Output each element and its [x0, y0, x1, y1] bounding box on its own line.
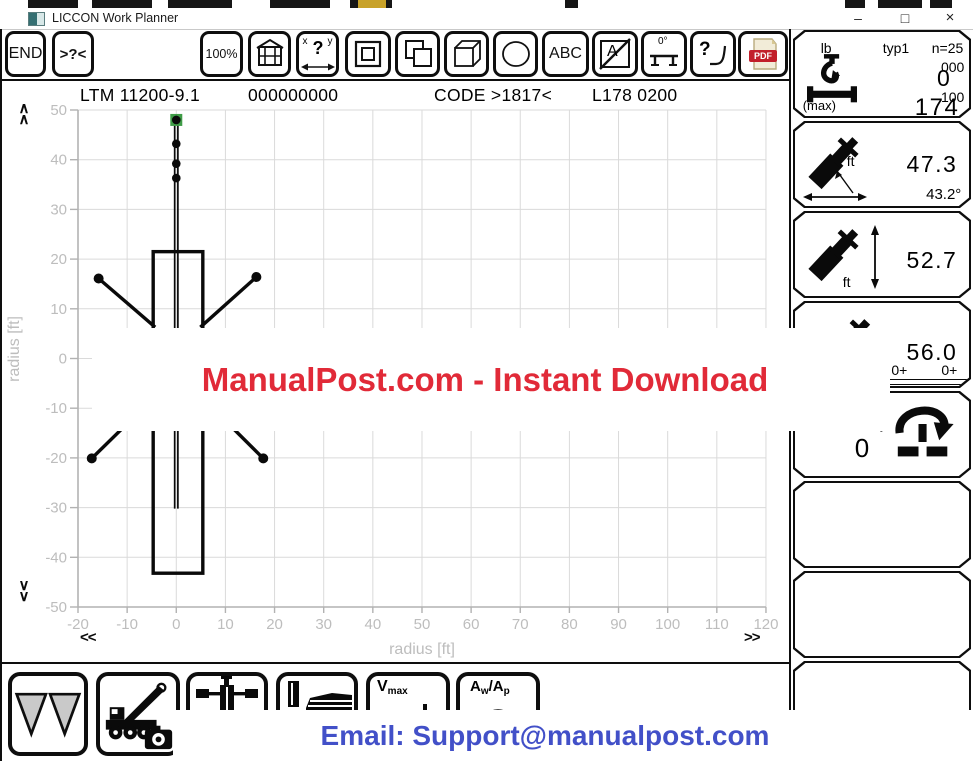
load-value-top: 0 — [937, 65, 951, 92]
outrigger-pad — [251, 272, 261, 282]
xy-question-icon: x y ? — [301, 36, 335, 72]
y-tick-label: -20 — [45, 450, 67, 467]
slope-query-button[interactable]: ? — [690, 31, 736, 77]
3d-view-button[interactable] — [444, 31, 489, 77]
x-tick-label: 10 — [217, 616, 234, 633]
slew-value: 0 — [855, 433, 871, 464]
y-tick-label: 50 — [50, 102, 67, 119]
zoom-100-button[interactable]: 100% — [200, 31, 243, 77]
x-tick-label: 80 — [561, 616, 578, 633]
height-unit: ft — [843, 274, 851, 290]
ground-angle-button[interactable]: 0° — [641, 31, 687, 77]
hook-position-dot — [172, 139, 181, 148]
x-axis-label: radius [ft] — [78, 641, 766, 659]
building-view-button[interactable] — [248, 31, 291, 77]
radius-value: 47.3 — [907, 151, 958, 178]
telescope-counter-2: 0+ — [891, 362, 907, 378]
titlebar: LICCON Work Planner – □ × — [0, 8, 973, 30]
scroll-page-down-button[interactable] — [8, 672, 88, 756]
end-label: END — [9, 45, 43, 63]
watermark-banner-text: ManualPost.com - Instant Download — [202, 361, 781, 399]
text-labels-button[interactable]: ABC — [542, 31, 589, 77]
a-crossed-icon: A — [598, 37, 632, 71]
x-tick-label: 60 — [463, 616, 480, 633]
boom-angle-icon — [801, 127, 871, 203]
inner-view-button[interactable] — [345, 31, 391, 77]
hook-height-panel[interactable]: ft 52.7 — [793, 211, 971, 298]
y-tick-label: 40 — [50, 152, 67, 169]
hook-position-dot — [172, 116, 181, 125]
load-type: typ1 — [883, 40, 909, 56]
vmax-label: Vmax — [377, 678, 408, 696]
close-button[interactable]: × — [935, 8, 965, 29]
watermark-banner: ManualPost.com - Instant Download — [92, 328, 890, 431]
outrigger-pad — [87, 453, 97, 463]
y-tick-label: 30 — [50, 201, 67, 218]
outrigger-pad — [94, 273, 104, 283]
x-tick-label: 110 — [705, 616, 729, 633]
x-tick-label: -10 — [116, 616, 138, 633]
x-tick-label: 120 — [753, 616, 778, 633]
zoom-label: 100% — [206, 47, 238, 61]
awap-label: Aw/Ap — [470, 678, 510, 696]
x-tick-label: 90 — [610, 616, 627, 633]
cube-icon — [450, 37, 484, 71]
window-title: LICCON Work Planner — [52, 11, 178, 25]
telescope-counter-3: 0+ — [941, 362, 957, 378]
empty-panel-2[interactable] — [793, 571, 971, 658]
crane-view-button[interactable] — [96, 672, 180, 756]
search-label: >?< — [60, 46, 87, 63]
empty-panel-1[interactable] — [793, 481, 971, 568]
radius-unit: ft — [847, 153, 855, 169]
level-surface-icon: 0° — [647, 36, 681, 72]
pdf-icon: PDF — [745, 37, 781, 71]
abc-label: ABC — [549, 45, 582, 63]
load-caption: (max) — [803, 98, 836, 113]
search-button[interactable]: >?< — [52, 31, 94, 77]
building-icon — [253, 37, 287, 71]
load-count: n=25 — [932, 40, 964, 56]
x-tick-label: 70 — [512, 616, 529, 633]
y-tick-label: 0 — [59, 351, 67, 368]
x-tick-label: 0 — [172, 616, 180, 633]
y-tick-label: 10 — [50, 301, 67, 318]
height-value: 52.7 — [907, 247, 958, 274]
x-tick-label: -20 — [67, 616, 89, 633]
y-tick-label: -40 — [45, 549, 67, 566]
app-icon — [28, 12, 45, 26]
x-tick-label: 30 — [315, 616, 332, 633]
y-tick-label: -10 — [45, 400, 67, 417]
minimize-button[interactable]: – — [843, 8, 873, 29]
overlapping-squares-icon — [401, 37, 435, 71]
outrigger-pad — [258, 453, 268, 463]
hook-position-dot — [172, 159, 181, 168]
question-curve-icon: ? — [696, 37, 730, 71]
crane-photo-icon — [100, 676, 178, 754]
coordinates-query-button[interactable]: x y ? — [296, 31, 339, 77]
end-button[interactable]: END — [5, 31, 46, 77]
pdf-export-button[interactable]: PDF — [738, 31, 788, 77]
x-tick-label: 50 — [414, 616, 431, 633]
double-down-triangles-icon — [13, 690, 83, 738]
watermark-email-text: Email: Support@manualpost.com — [321, 720, 826, 752]
x-tick-label: 20 — [266, 616, 283, 633]
hook-position-dot — [172, 174, 181, 183]
x-tick-label: 40 — [364, 616, 381, 633]
load-value-bottom: 174 — [915, 94, 960, 122]
y-tick-label: 20 — [50, 251, 67, 268]
overlap-view-button[interactable] — [395, 31, 440, 77]
hide-labels-button[interactable]: A — [592, 31, 638, 77]
square-in-square-icon — [351, 37, 385, 71]
y-axis-label: radius [ft] — [6, 316, 24, 382]
circle-view-button[interactable] — [493, 31, 538, 77]
circle-icon — [499, 37, 533, 71]
load-panel[interactable]: lb typ1 n=25 (max) 000 0 100 174 — [793, 30, 971, 118]
y-tick-label: -30 — [45, 500, 67, 517]
x-tick-label: 100 — [655, 616, 680, 633]
radius-panel[interactable]: ft 47.3 43.2° — [793, 121, 971, 208]
slew-rotation-icon — [887, 395, 959, 471]
liccon-work-planner-window: LICCON Work Planner – □ × END >?< 100% x… — [0, 0, 973, 761]
maximize-button[interactable]: □ — [890, 8, 920, 29]
boom-angle-value: 43.2° — [926, 186, 961, 203]
y-tick-label: -50 — [45, 599, 67, 616]
watermark-email: Email: Support@manualpost.com — [173, 710, 973, 761]
outrigger-beam — [200, 277, 256, 327]
